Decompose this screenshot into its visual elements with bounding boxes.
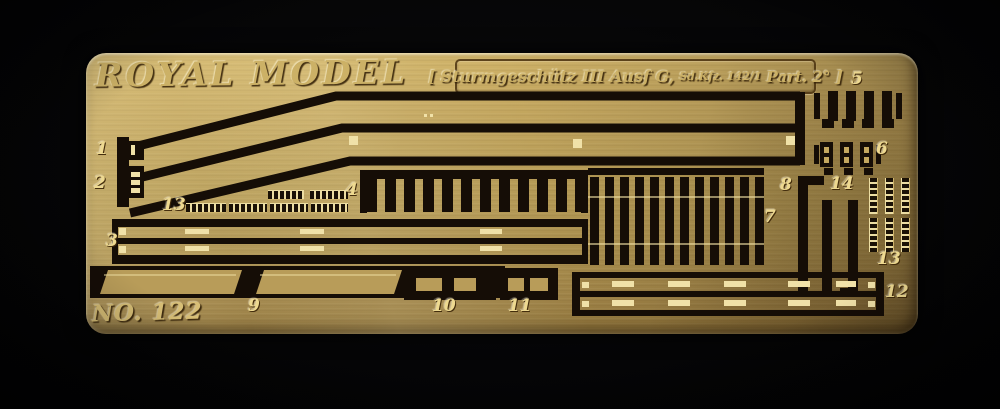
- part-label-8: 8: [780, 177, 792, 194]
- part-label-9: 9: [248, 298, 260, 315]
- track-chain-strip: [311, 203, 348, 213]
- track-chain-strip: [268, 190, 304, 200]
- etched-parts-layer: [0, 0, 1000, 409]
- part12-strips-etch: [572, 272, 884, 316]
- part-label-2: 2: [94, 175, 106, 192]
- track-chain-strip: [186, 203, 226, 213]
- track-chain-strip: [869, 218, 878, 252]
- part7-fold-lines: [588, 196, 764, 245]
- track-chain-strip: [885, 178, 894, 214]
- part5-clamps: [814, 91, 902, 128]
- part3-strips-etch: [112, 219, 588, 264]
- track-chain-strip: [885, 218, 894, 252]
- part-label-3: 3: [106, 233, 118, 250]
- part10-11-etch: [404, 268, 558, 300]
- part-label-14: 14: [830, 176, 854, 193]
- track-chain-strip: [901, 178, 910, 214]
- track-chain-strip: [270, 203, 308, 213]
- part-label-10: 10: [432, 298, 456, 315]
- track-chain-strip: [869, 178, 878, 214]
- part-label-13-left: 13: [162, 197, 186, 214]
- part-label-4: 4: [346, 182, 358, 199]
- part4-comb: [360, 170, 588, 213]
- sheet-number: NO. 122: [92, 298, 203, 328]
- part-label-1: 1: [96, 141, 108, 158]
- part-label-5: 5: [851, 71, 863, 88]
- part-label-6: 6: [876, 141, 888, 158]
- track-chain-strip: [310, 190, 348, 200]
- part-label-13-right: 13: [877, 251, 901, 268]
- part-label-11: 11: [508, 298, 532, 315]
- part-label-12: 12: [885, 284, 909, 301]
- track-chain-strip: [229, 203, 267, 213]
- part7-bars: [588, 168, 764, 265]
- photo-stage: ROYAL MODEL [ Sturmgeschütz III Ausf G, …: [0, 0, 1000, 409]
- track-chain-strip: [901, 218, 910, 252]
- part-label-7: 7: [764, 209, 776, 226]
